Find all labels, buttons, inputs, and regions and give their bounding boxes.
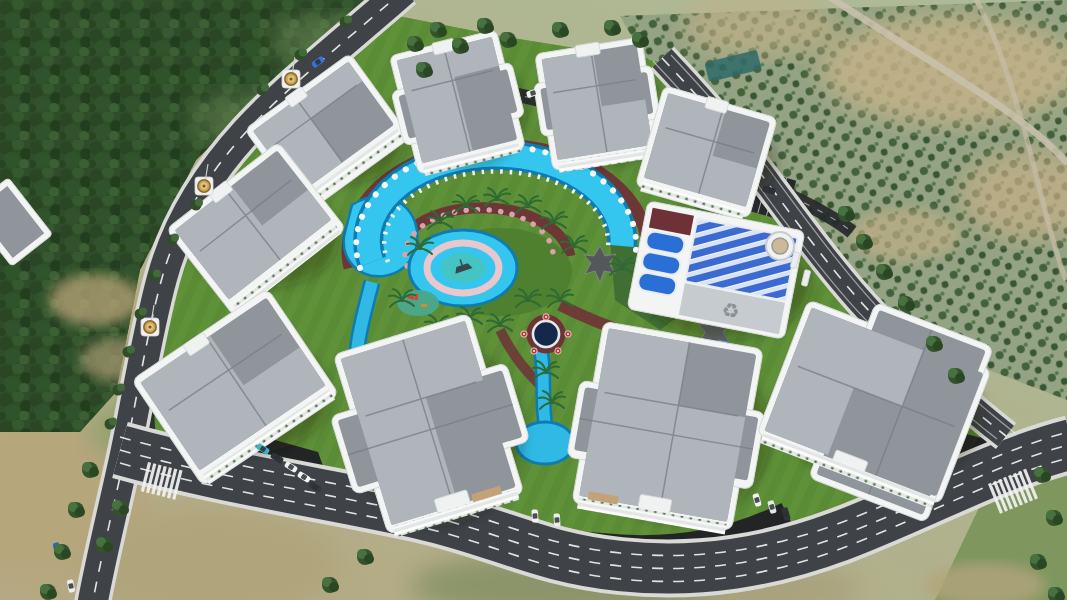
- car: [531, 509, 538, 522]
- red-umbrella-icon: [521, 331, 527, 337]
- fountain: [533, 321, 559, 347]
- aerial-render: ♻: [0, 0, 1067, 600]
- red-umbrella-icon: [565, 331, 571, 337]
- red-umbrella-icon: [531, 348, 537, 354]
- red-umbrella-icon: [543, 314, 549, 320]
- car: [553, 513, 560, 526]
- playground: [397, 290, 439, 316]
- red-umbrella-icon: [555, 348, 561, 354]
